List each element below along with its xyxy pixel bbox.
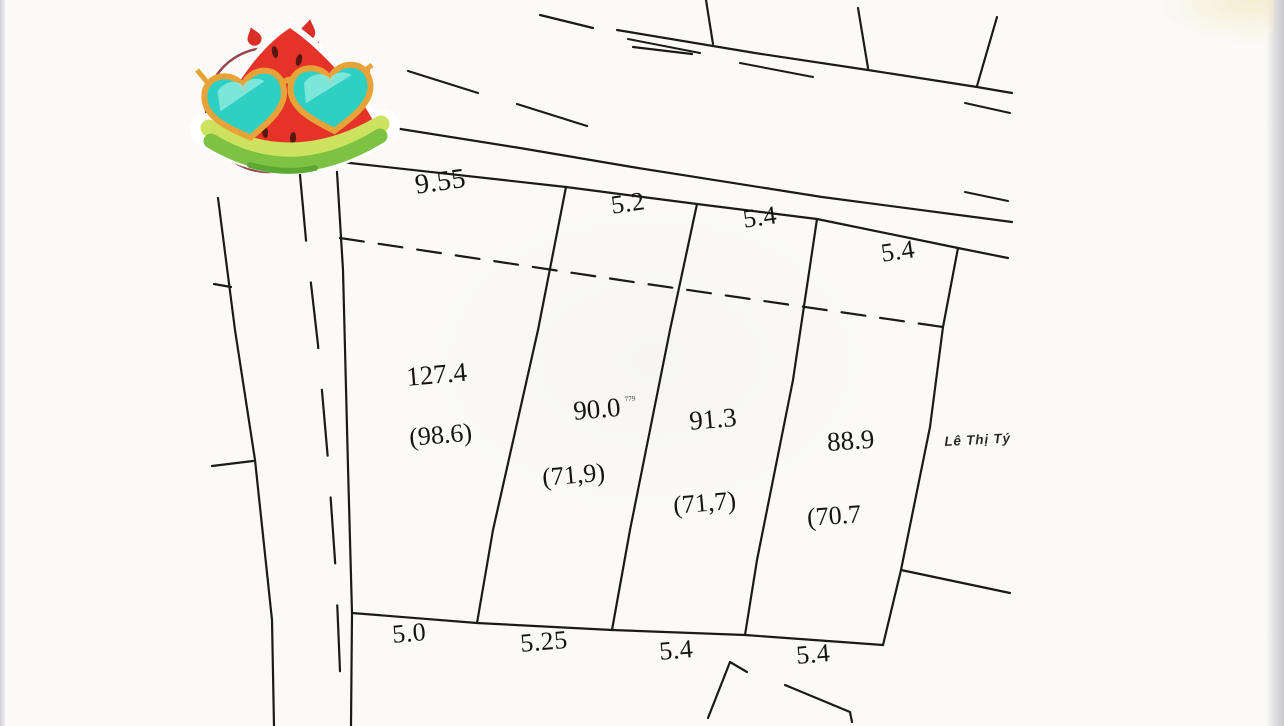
sunglasses-left-arm (197, 70, 207, 82)
page-edge-right (1266, 0, 1284, 726)
page-edge-left (0, 0, 6, 726)
watermelon-sticker (0, 0, 1284, 726)
scanned-map-page: 9.55 5.2 5.4 5.4 5.0 5.25 5.4 5.4 127.4 … (0, 0, 1284, 726)
page-corner-tint (1154, 0, 1274, 46)
